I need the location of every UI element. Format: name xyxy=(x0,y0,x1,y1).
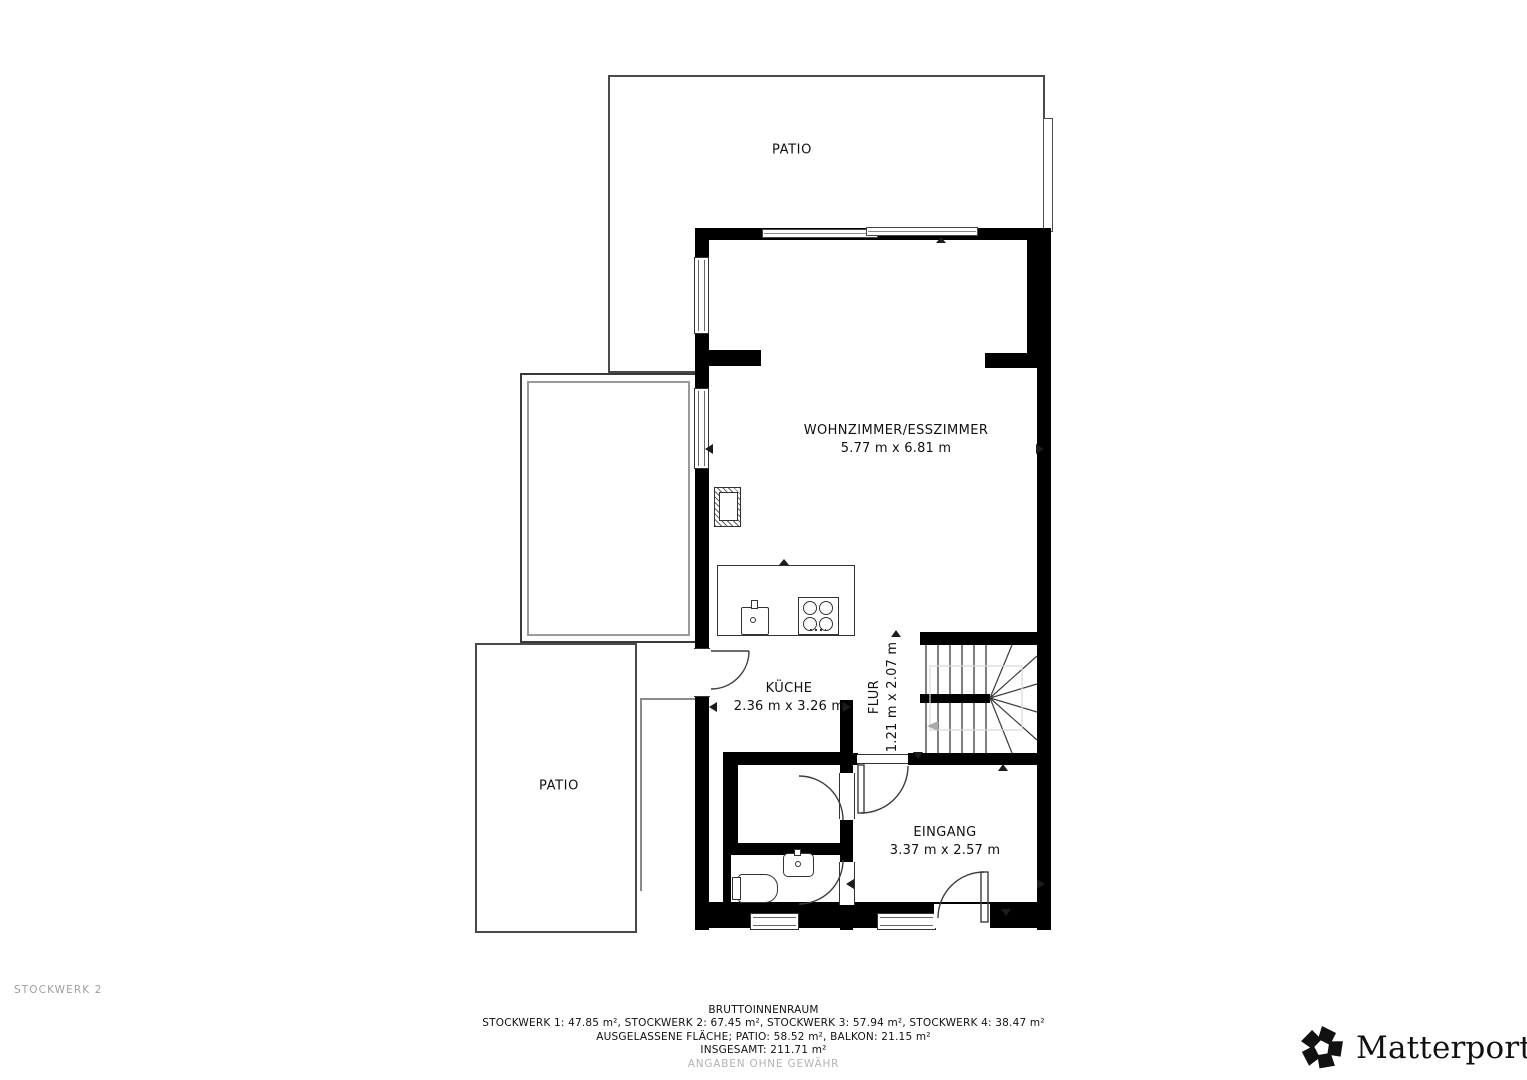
wall-storage-left xyxy=(723,765,738,845)
kitchen-label: KÜCHE 2.36 m x 3.26 m xyxy=(734,680,844,716)
entrance-label: EINGANG 3.37 m x 2.57 m xyxy=(890,824,1000,860)
wall-bath-right-b xyxy=(840,905,853,930)
window-south-entry xyxy=(877,913,936,930)
bathroom-sink-drain xyxy=(795,861,801,867)
patio-step-line-h xyxy=(640,698,695,700)
wall-stub-right xyxy=(985,353,1051,368)
kitchen-dims: 2.36 m x 3.26 m xyxy=(734,698,844,716)
wall-left-mid2 xyxy=(695,466,709,648)
matterport-pinwheel-icon xyxy=(1298,1022,1346,1074)
wall-bath-left xyxy=(723,855,731,910)
wall-stairs-mid xyxy=(920,694,990,703)
burner-2 xyxy=(819,601,833,615)
wall-kitchen-bottom xyxy=(723,752,847,765)
hall-name: FLUR xyxy=(866,642,884,752)
window-west-2 xyxy=(694,388,709,469)
balcony-inner-line xyxy=(527,381,690,636)
door-opening-front xyxy=(934,904,990,928)
level-label: STOCKWERK 2 xyxy=(14,984,103,996)
patio-top-label: PATIO xyxy=(772,143,812,158)
sink-drain xyxy=(750,617,756,623)
floorplan-canvas: PATIO PATIO xyxy=(0,0,1527,1080)
hall-label: FLUR 1.21 m x 2.07 m xyxy=(866,642,902,752)
entrance-name: EINGANG xyxy=(890,824,1000,842)
sink-faucet xyxy=(751,600,758,609)
wall-hall-bottom xyxy=(908,753,1051,765)
kitchen-name: KÜCHE xyxy=(734,680,844,698)
living-room-dims: 5.77 m x 6.81 m xyxy=(804,440,989,458)
door-opening-kitchen xyxy=(694,648,710,697)
window-north-1 xyxy=(762,229,878,238)
wall-bottom xyxy=(695,902,1051,928)
footer-title: BRUTTOINNENRAUM xyxy=(0,1004,1527,1017)
entrance-dims: 3.37 m x 2.57 m xyxy=(890,842,1000,860)
toilet-tank xyxy=(732,877,741,900)
wall-left-lower xyxy=(695,695,709,930)
burner-1 xyxy=(803,601,817,615)
window-north-2 xyxy=(866,227,978,236)
logo-text: Matterport xyxy=(1356,1030,1527,1066)
window-south-bath xyxy=(750,913,799,930)
wall-right-lower xyxy=(1037,368,1051,930)
wall-bath-right-a xyxy=(840,820,853,863)
window-west-1 xyxy=(694,257,709,334)
wall-right-upper xyxy=(1027,228,1051,368)
matterport-logo: Matterport® xyxy=(1298,1022,1527,1074)
bathroom-sink-faucet xyxy=(794,849,801,856)
patio-step-line-v xyxy=(640,698,642,891)
door-opening-storage xyxy=(839,773,855,819)
door-opening-bath xyxy=(839,862,855,905)
wall-left-mid1 xyxy=(695,331,709,389)
toilet-bowl xyxy=(738,874,778,903)
living-room-name: WOHNZIMMER/ESSZIMMER xyxy=(804,422,989,440)
fireplace-core xyxy=(719,492,738,521)
wall-stub-left xyxy=(709,350,761,366)
wall-left-upper xyxy=(695,228,709,258)
wall-storage-bath xyxy=(723,843,843,855)
wall-stairs-top xyxy=(920,632,1037,645)
stove-knobs xyxy=(810,629,826,631)
matterport-wordmark: Matterport® xyxy=(1356,1030,1527,1066)
hall-dims: 1.21 m x 2.07 m xyxy=(884,642,902,752)
living-room-label: WOHNZIMMER/ESSZIMMER 5.77 m x 6.81 m xyxy=(804,422,989,458)
patio-left-label: PATIO xyxy=(539,779,579,794)
patio-top-step-edge xyxy=(1043,118,1053,232)
door-threshold-hall xyxy=(857,754,908,764)
